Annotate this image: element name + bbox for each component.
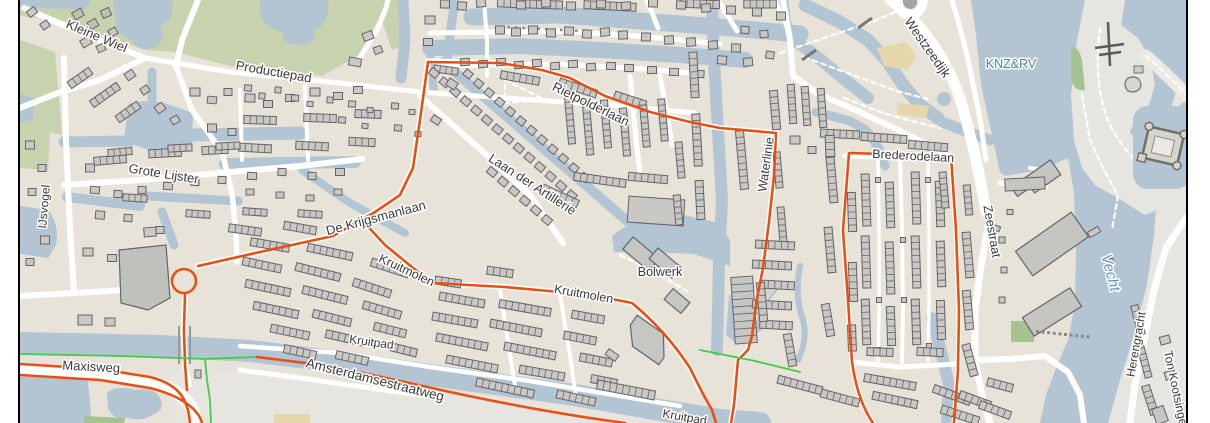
- svg-text:Bolwerk: Bolwerk: [638, 265, 683, 279]
- svg-text:Maxisweg: Maxisweg: [62, 358, 121, 376]
- svg-text:KNZ&RV: KNZ&RV: [986, 57, 1037, 71]
